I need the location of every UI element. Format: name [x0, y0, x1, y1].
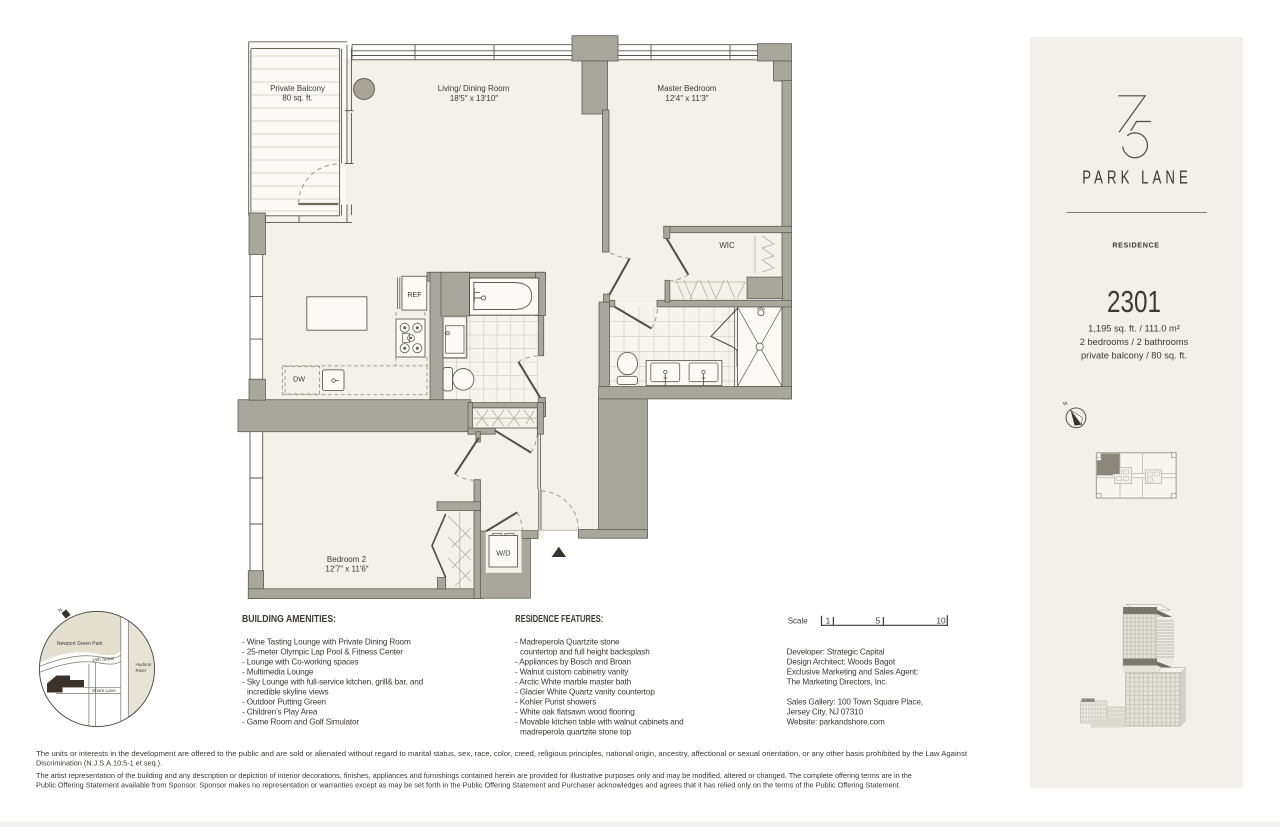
svg-text:River: River	[136, 668, 147, 673]
svg-text:RESIDENCE: RESIDENCE	[1112, 241, 1159, 250]
svg-text:The artist representation of t: The artist representation of the buildin…	[36, 771, 912, 780]
svg-text:Shore Lane: Shore Lane	[92, 688, 116, 693]
svg-text:Sales Gallery: 100 Town Square: Sales Gallery: 100 Town Square Place,	[787, 698, 923, 707]
svg-text:Design Architect: Woods Bagot: Design Architect: Woods Bagot	[787, 658, 896, 667]
svg-text:countertop and full height bac: countertop and full height backsplash	[520, 648, 650, 657]
svg-text:Scale: Scale	[788, 616, 809, 625]
svg-text:- Appliances by Bosch and Broa: - Appliances by Bosch and Broan	[515, 658, 632, 667]
svg-text:Developer: Strategic Capital: Developer: Strategic Capital	[787, 648, 885, 657]
svg-text:- Lounge with Co-working space: - Lounge with Co-working spaces	[242, 658, 358, 667]
svg-text:The Marketing Directors, Inc.: The Marketing Directors, Inc.	[787, 678, 888, 687]
svg-text:- Multimedia Lounge: - Multimedia Lounge	[242, 668, 314, 677]
svg-text:REF: REF	[407, 290, 422, 299]
svg-text:Exclusive Marketing and Sales: Exclusive Marketing and Sales Agent:	[787, 668, 919, 677]
svg-text:- White oak flatsawn wood floo: - White oak flatsawn wood flooring	[515, 708, 635, 717]
svg-text:80 sq. ft.: 80 sq. ft.	[282, 94, 312, 103]
svg-text:18′5″ x 13′10″: 18′5″ x 13′10″	[450, 94, 498, 103]
svg-text:5: 5	[876, 615, 881, 625]
svg-text:DW: DW	[293, 375, 305, 384]
svg-text:2301: 2301	[1107, 285, 1161, 319]
svg-text:W/D: W/D	[496, 549, 510, 558]
svg-text:- Game Room and Golf Simulator: - Game Room and Golf Simulator	[242, 718, 359, 727]
svg-text:Private Balcony: Private Balcony	[270, 84, 325, 93]
svg-text:WIC: WIC	[719, 241, 735, 250]
svg-text:PARK LANE: PARK LANE	[1082, 168, 1188, 187]
svg-text:- Outdoor Putting Green: - Outdoor Putting Green	[242, 698, 327, 707]
svg-text:private balcony / 80 sq. ft.: private balcony / 80 sq. ft.	[1081, 351, 1187, 361]
svg-text:incredible skyline views: incredible skyline views	[247, 688, 329, 697]
svg-text:Hudson: Hudson	[136, 662, 152, 667]
svg-text:Discrimination (N.J.S.A.10:5-1: Discrimination (N.J.S.A.10:5-1 et seq.).	[36, 759, 162, 768]
svg-text:Living/ Dining Room: Living/ Dining Room	[438, 84, 510, 93]
svg-text:- 25-meter Olympic Lap Pool &: - 25-meter Olympic Lap Pool & Fitness Ce…	[242, 648, 403, 657]
svg-text:- Wine Tasting Lounge with Pri: - Wine Tasting Lounge with Private Dinin…	[242, 638, 411, 647]
svg-text:- Madreperola Quartzite stone: - Madreperola Quartzite stone	[515, 638, 620, 647]
svg-text:- Arctic White marble master b: - Arctic White marble master bath	[515, 678, 632, 687]
svg-text:10: 10	[936, 615, 946, 625]
svg-text:The units or interests in the: The units or interests in the developmen…	[36, 749, 967, 758]
svg-text:1,195 sq. ft. / 111.0 m²: 1,195 sq. ft. / 111.0 m²	[1088, 324, 1180, 334]
svg-text:Website: parkandshore.com: Website: parkandshore.com	[787, 718, 885, 727]
svg-text:2 bedrooms / 2 bathrooms: 2 bedrooms / 2 bathrooms	[1080, 337, 1189, 347]
svg-text:- Movable kitchen table with w: - Movable kitchen table with walnut cabi…	[515, 718, 684, 727]
svg-text:Newport Green Park: Newport Green Park	[57, 641, 103, 647]
svg-text:- Walnut custom cabinetry vani: - Walnut custom cabinetry vanity	[515, 668, 629, 677]
svg-text:madreperola quartzite stone to: madreperola quartzite stone top	[520, 728, 632, 737]
svg-text:BUILDING AMENITIES:: BUILDING AMENITIES:	[242, 614, 336, 625]
svg-text:RESIDENCE FEATURES:: RESIDENCE FEATURES:	[515, 614, 603, 625]
svg-text:Jersey City, NJ 07310: Jersey City, NJ 07310	[787, 708, 864, 717]
svg-text:12′7″ x 11′6″: 12′7″ x 11′6″	[325, 565, 368, 574]
svg-text:- Sky Lounge with full-service: - Sky Lounge with full-service kitchen, …	[242, 678, 424, 687]
svg-text:12′4″ x 11′3″: 12′4″ x 11′3″	[665, 94, 708, 103]
svg-text:Master Bedroom: Master Bedroom	[657, 84, 716, 93]
svg-text:Public Offering Statement avai: Public Offering Statement available from…	[36, 781, 901, 790]
svg-text:1: 1	[826, 615, 831, 625]
svg-text:Bedroom 2: Bedroom 2	[327, 555, 367, 564]
svg-text:- Children’s Play Area: - Children’s Play Area	[242, 708, 318, 717]
svg-text:- Kohler Purist showers: - Kohler Purist showers	[515, 698, 596, 707]
svg-text:- Glacier White Quartz vanity: - Glacier White Quartz vanity countertop	[515, 688, 655, 697]
